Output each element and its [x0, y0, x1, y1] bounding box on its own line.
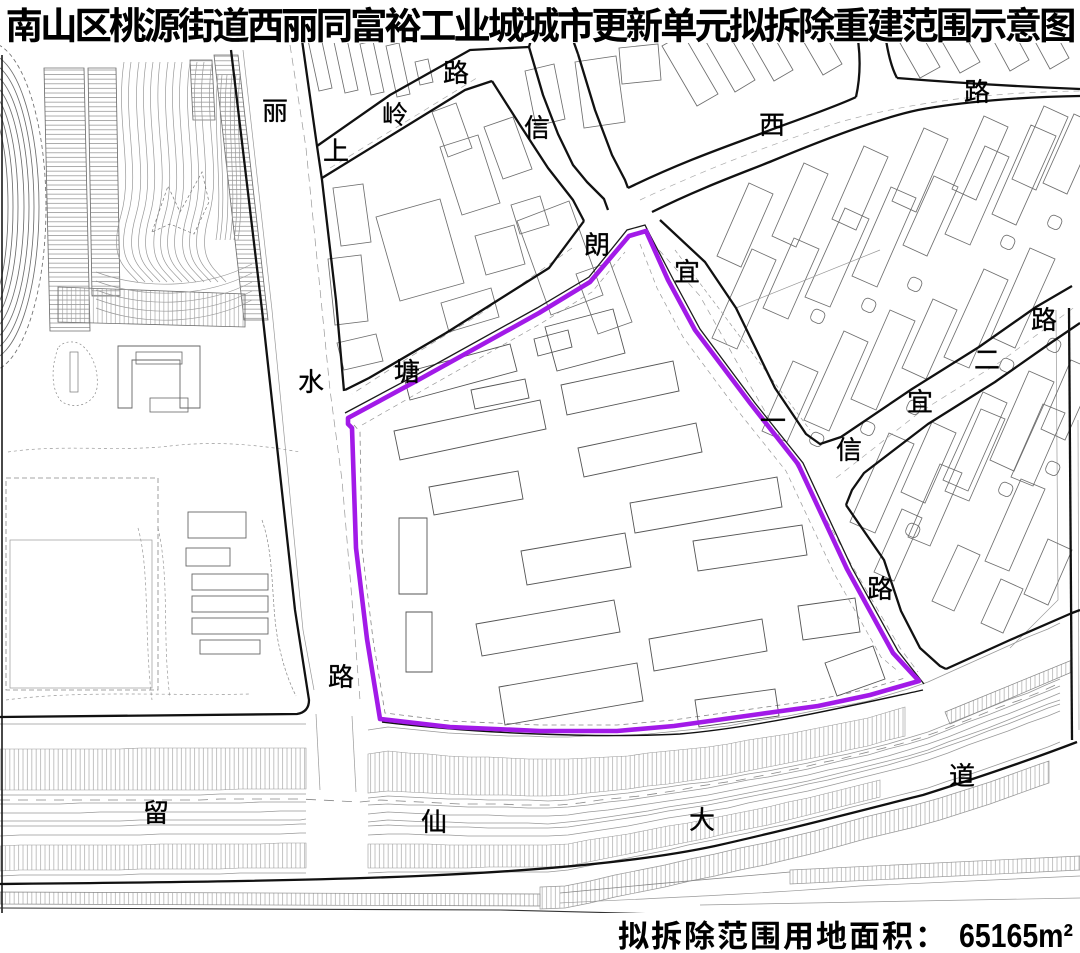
svg-text:65165m²: 65165m²	[959, 917, 1073, 953]
